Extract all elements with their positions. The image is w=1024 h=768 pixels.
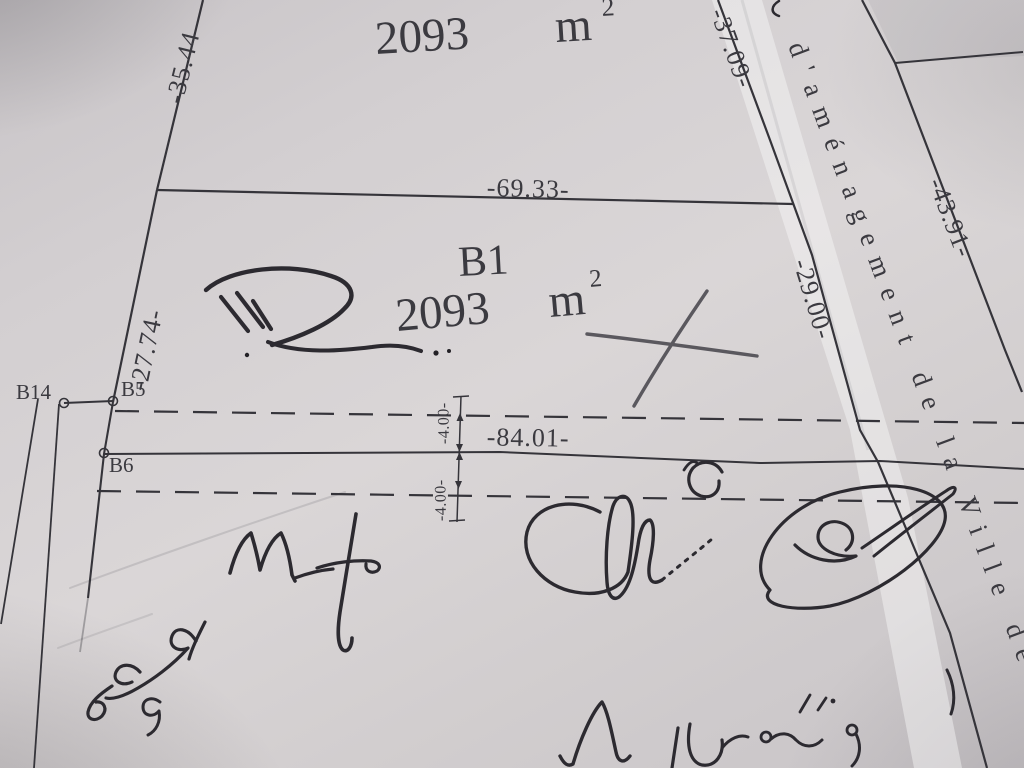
tie-line-b14-b5: [64, 401, 113, 403]
dim-35-44-label: -35.44: [160, 28, 206, 106]
signature-monogram-mf: [230, 514, 379, 651]
dim-4-00-lower-label: -4.00-: [432, 479, 450, 521]
upper-parcel-area-unit: m: [553, 0, 593, 53]
dim-84-01-label: -84.01-: [486, 422, 569, 452]
dashed-setback-line-upper: [115, 411, 1024, 423]
dimension-end-bar-bottom: [449, 520, 465, 521]
boundary-line-b5-b6: [88, 402, 113, 598]
parcel-area-number: 2093: [393, 282, 491, 342]
point-label-b5: B5: [121, 377, 146, 401]
upper-parcel-area-exponent: 2: [601, 0, 616, 22]
plan-drawing: 2093 m 2 -69.33- B1 2093 m 2 -35.44 -27.…: [0, 0, 1024, 768]
upper-parcel-area-number: 2093: [373, 7, 470, 65]
pencil-x-mark: [587, 291, 757, 406]
paper-shade-top-right: [868, 0, 1024, 62]
dim-69-33-label: -69.33-: [486, 173, 570, 204]
parcel-id-label: B1: [457, 236, 510, 286]
dim-4-00-upper-label: -4.00-: [435, 402, 453, 444]
dimension-arrow: [455, 481, 462, 489]
signature-center: [526, 462, 722, 599]
parcel-area-exponent: 2: [588, 265, 603, 293]
dimension-arrow: [456, 444, 463, 452]
point-label-b6: B6: [109, 453, 134, 477]
boundary-line-fading: [80, 598, 88, 652]
dimension-arrow: [457, 413, 464, 421]
handwriting-arabic-bottom-left: [88, 622, 205, 735]
survey-plan-photo: 2093 m 2 -69.33- B1 2093 m 2 -35.44 -27.…: [0, 0, 1024, 768]
left-double-line-outer: [1, 399, 38, 624]
parcel-area-unit: m: [546, 273, 587, 328]
point-label-b14: B14: [16, 380, 52, 404]
dimension-line-69-33: [157, 190, 793, 204]
cutoff-mark-top: [773, 1, 779, 16]
dim-43-91-label: -43.91-: [922, 174, 979, 262]
left-double-line-inner: [34, 404, 59, 768]
faint-crease-line: [58, 614, 152, 648]
handwriting-bottom-edge: [560, 670, 954, 768]
dimension-end-bar-top: [453, 396, 469, 397]
